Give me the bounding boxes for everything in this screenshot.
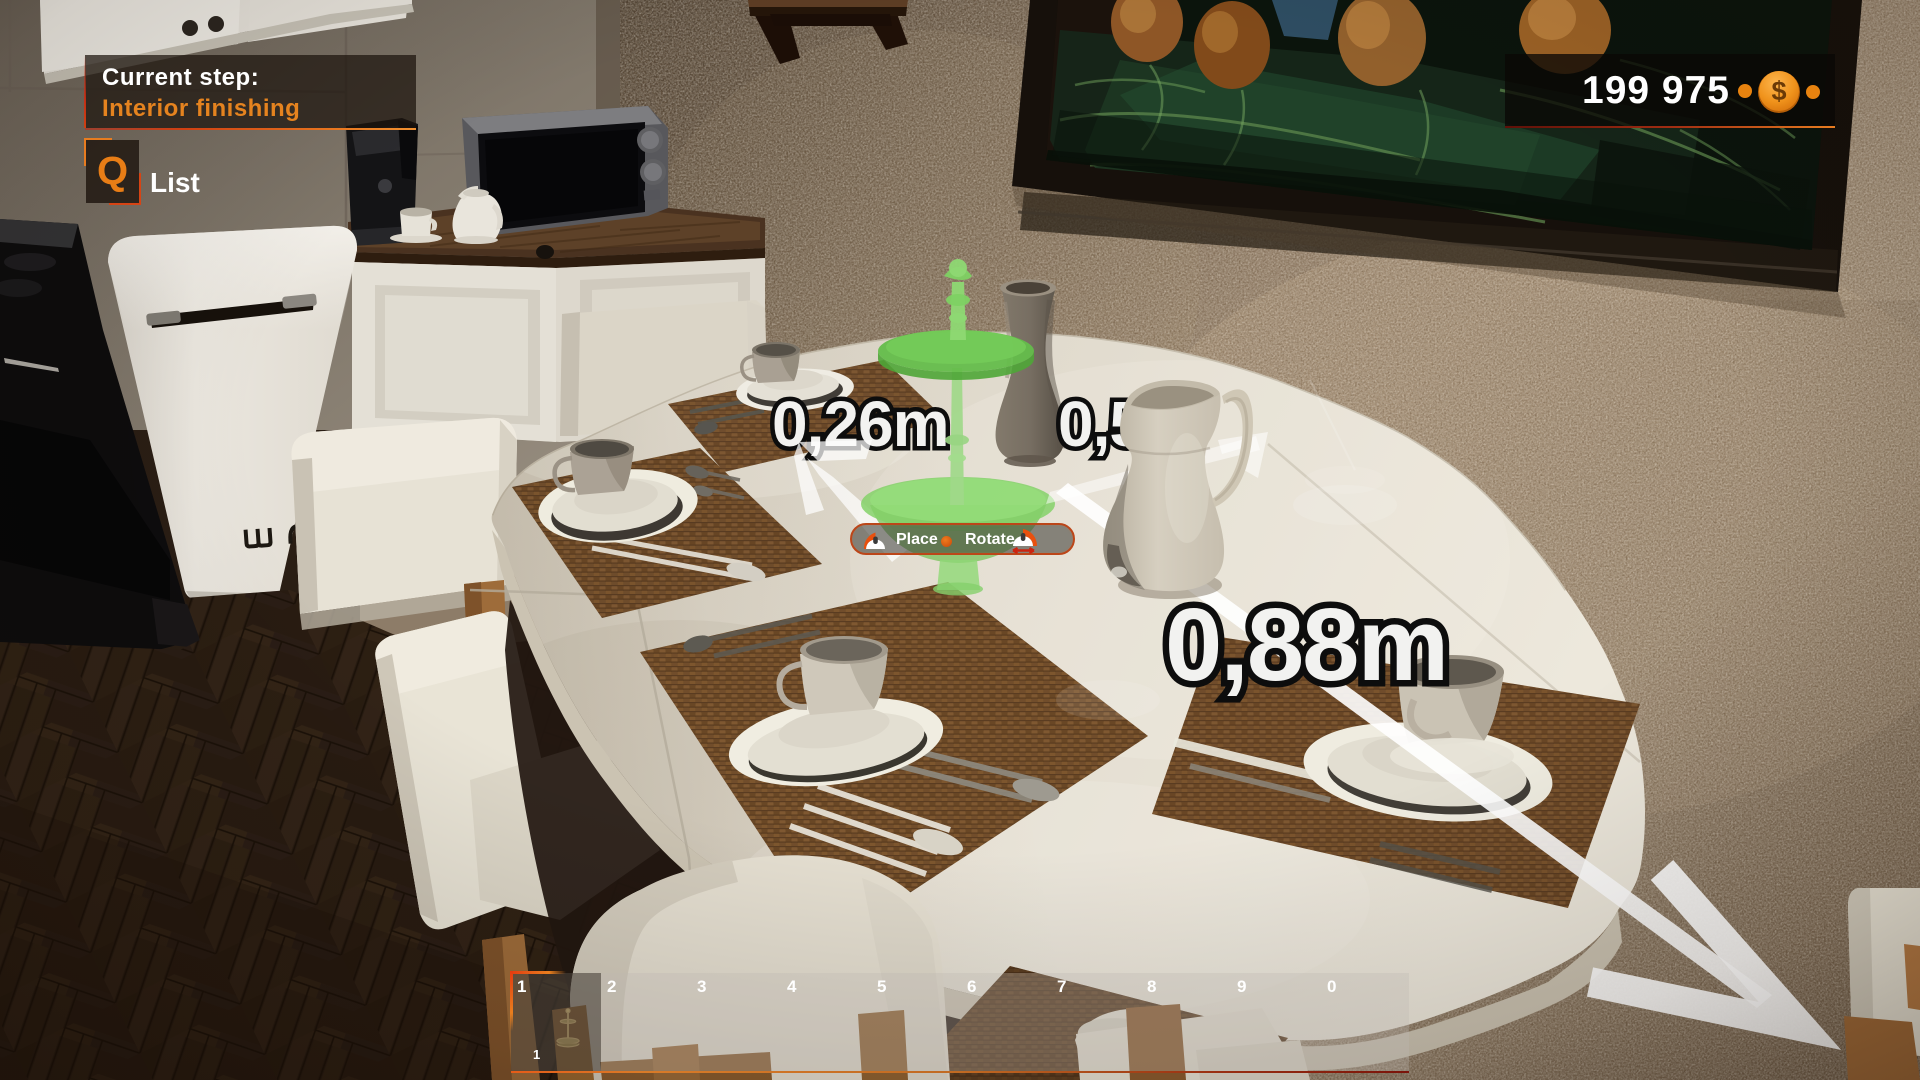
svg-text:$: $ — [1771, 76, 1786, 106]
